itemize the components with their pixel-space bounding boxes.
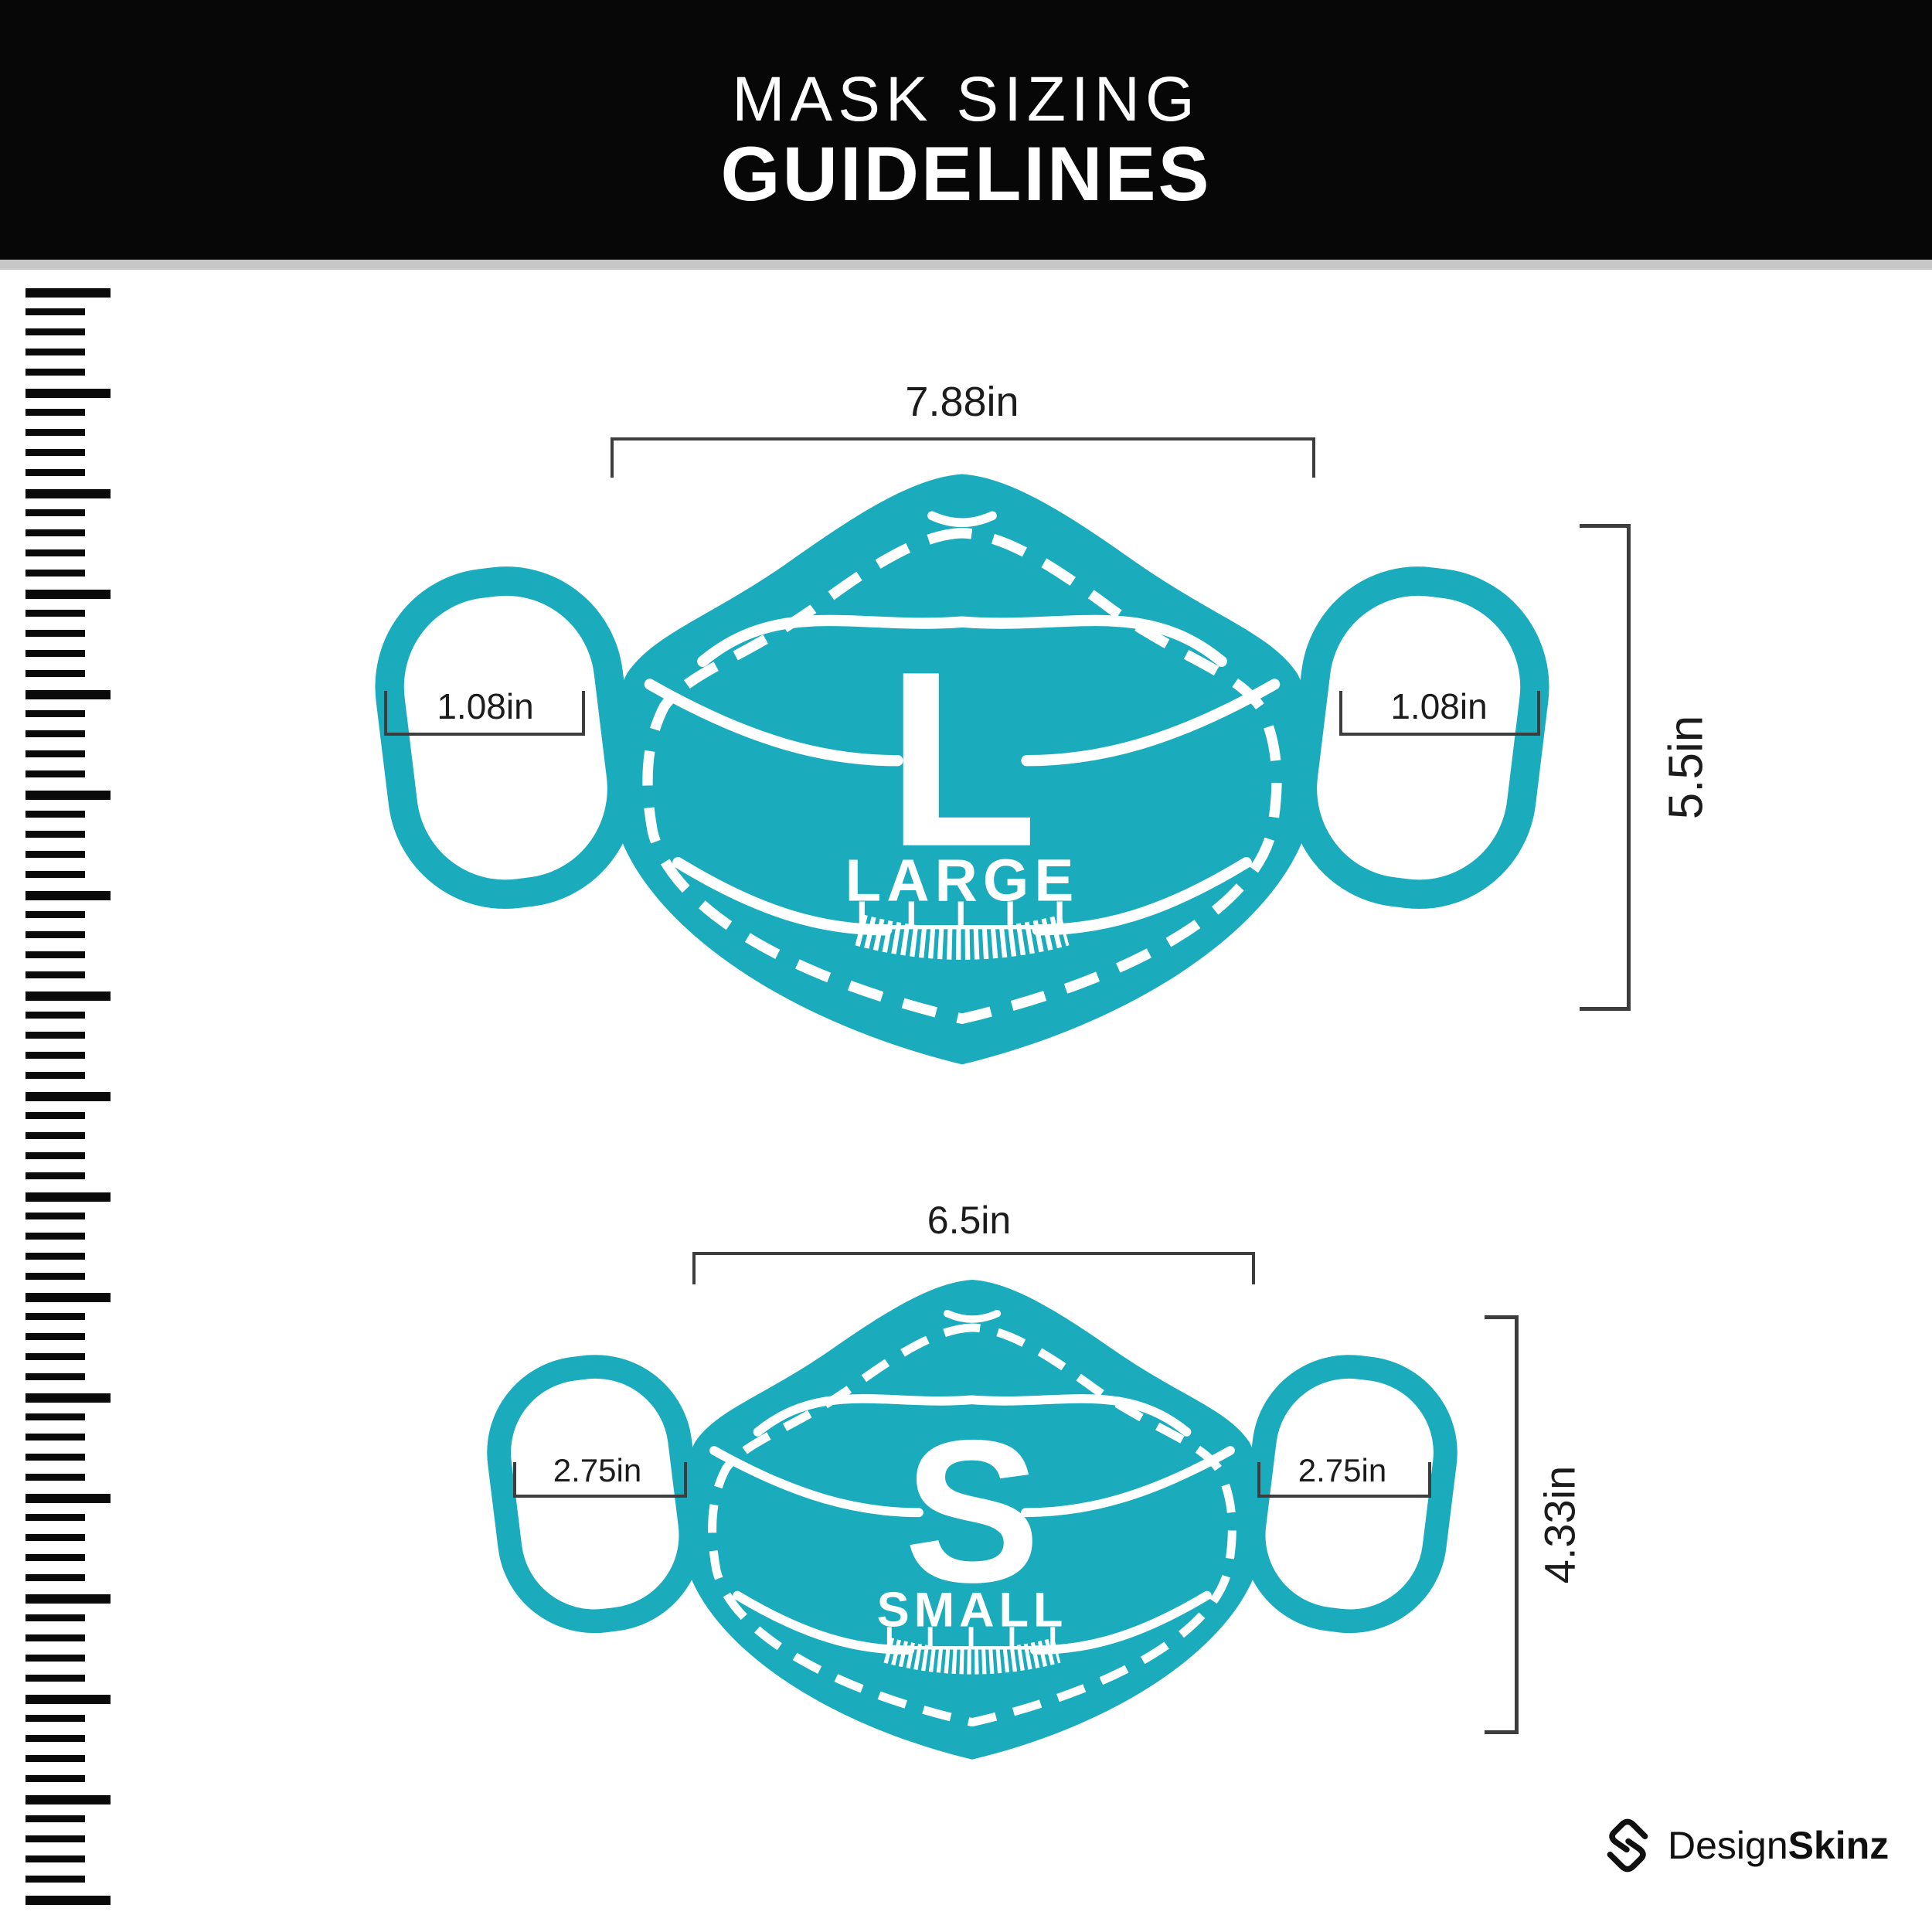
small-mask-illustration: S SMALL [490, 1271, 1454, 1767]
large-right-ear-loop [1291, 570, 1546, 906]
ruler-ticks-icon [26, 288, 111, 1905]
designskinz-diamond-s-icon [1598, 1816, 1657, 1875]
small-width-label: 6.5in [927, 1198, 1011, 1243]
small-height-bracket [1485, 1315, 1519, 1734]
small-right-ear-bracket [1257, 1462, 1431, 1498]
ruler-major-ticks [26, 288, 111, 1905]
brand-name: DesignSkinz [1668, 1823, 1889, 1868]
large-size-word: LARGE [845, 847, 1080, 913]
small-size-word: SMALL [877, 1583, 1068, 1638]
mask-sizing-infographic: MASK SIZING GUIDELINES 7.88in L LARGE 1.… [0, 0, 1932, 1932]
page-title-line1: MASK SIZING [0, 63, 1932, 136]
large-mask-illustration: L LARGE [379, 464, 1546, 1074]
header-divider [0, 260, 1932, 270]
brand-logo: DesignSkinz [1598, 1816, 1889, 1875]
header-banner: MASK SIZING GUIDELINES [0, 0, 1932, 260]
brand-name-regular: Design [1668, 1824, 1788, 1867]
large-right-ear-bracket [1339, 691, 1540, 736]
large-left-ear-loop [378, 570, 634, 906]
large-left-ear-bracket [384, 691, 585, 736]
large-width-label: 7.88in [905, 378, 1019, 426]
large-height-label: 5.5in [1659, 716, 1714, 819]
small-height-label: 4.33in [1535, 1466, 1585, 1584]
brand-name-bold: Skinz [1788, 1824, 1889, 1867]
small-left-ear-bracket [513, 1462, 687, 1498]
page-title-line2: GUIDELINES [0, 130, 1932, 218]
large-height-bracket [1580, 524, 1631, 1011]
